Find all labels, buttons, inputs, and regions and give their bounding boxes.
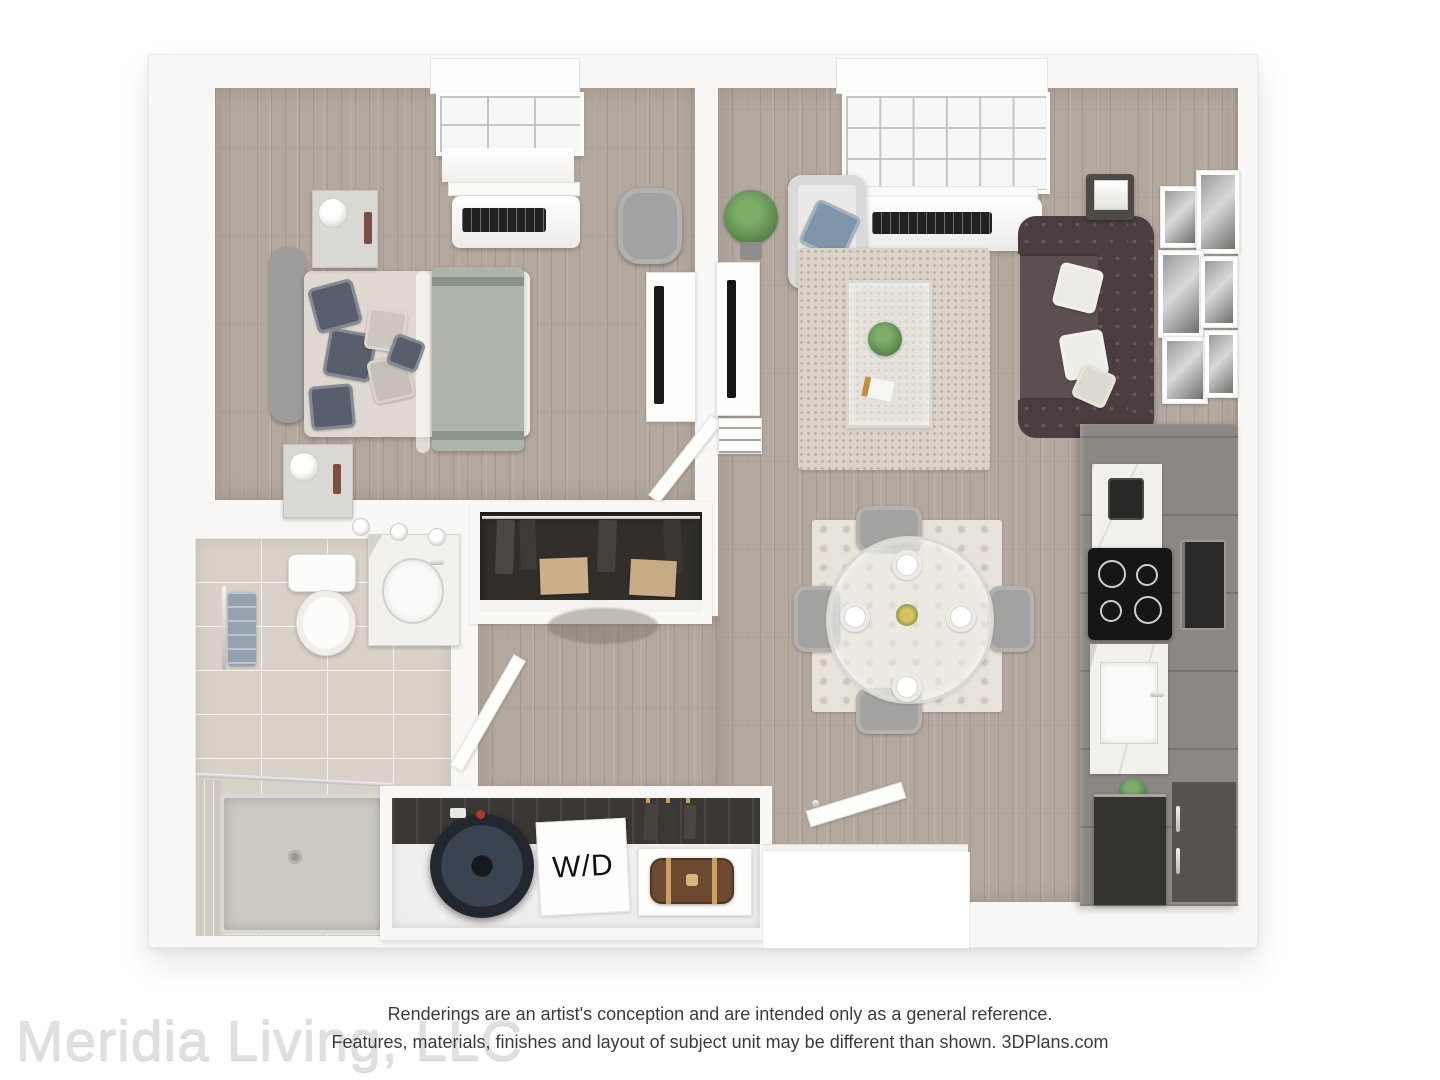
- bedroom-monitor: [654, 286, 664, 404]
- living-window: [842, 92, 1050, 194]
- place-setting-south: [892, 672, 922, 702]
- vanity-sconce-1: [352, 518, 370, 536]
- entry-opening: [762, 852, 970, 948]
- vanity-sconce-2: [390, 523, 408, 541]
- cooktop: [1088, 548, 1172, 640]
- sofa-arm-top: [1018, 216, 1128, 254]
- vanity-sink: [382, 558, 444, 624]
- nightstand-top-lamp: [318, 198, 348, 228]
- washer-dryer: W/D: [536, 818, 631, 917]
- nightstand-top-drawers: [364, 212, 372, 244]
- disclaimer-line-1: Renderings are an artist's conception an…: [0, 1000, 1440, 1028]
- living-window-frame: [836, 58, 1048, 94]
- refrigerator-handle-2: [1176, 848, 1180, 874]
- hanger-hooks: [646, 798, 698, 803]
- dining-centerpiece: [896, 604, 918, 626]
- doormat: [548, 608, 658, 644]
- floor-plan: W/D: [0, 0, 1440, 1000]
- duffel-bag-strap-1: [666, 858, 671, 904]
- toilet-bowl: [296, 590, 356, 656]
- burner-3: [1100, 600, 1122, 622]
- burner-1: [1098, 560, 1126, 588]
- water-heater-cap: [450, 808, 466, 818]
- bed: [270, 245, 526, 453]
- closet-box-2: [629, 559, 677, 597]
- bed-blanket: [432, 267, 524, 451]
- place-setting-north: [892, 550, 922, 580]
- bed-blanket-band-bottom: [432, 431, 524, 440]
- media-shelf: [718, 418, 762, 454]
- tv-console: [716, 262, 760, 416]
- towel: [228, 592, 256, 666]
- wall-art-1: [1160, 186, 1200, 248]
- water-heater: [430, 814, 534, 918]
- closet-clothes-1: [495, 520, 515, 575]
- corner-plant-pot: [740, 242, 762, 260]
- nightstand-bottom-drawers: [333, 464, 341, 494]
- living-ac-vent: [872, 212, 992, 234]
- nightstand-bottom-lamp: [289, 452, 319, 482]
- water-heater-valve: [476, 810, 485, 819]
- dishwasher: [1094, 794, 1166, 905]
- closet-clothes-3: [597, 520, 617, 573]
- burner-2: [1136, 564, 1158, 586]
- bedroom-ac-vent: [462, 208, 546, 232]
- shower-tile-wall: [195, 780, 221, 936]
- laundry-closet-interior: W/D: [392, 798, 760, 928]
- vanity-sconce-3: [428, 528, 446, 546]
- page: { "footer": { "disclaimer_line1": "Rende…: [0, 0, 1440, 1080]
- washer-dryer-label: W/D: [551, 848, 614, 885]
- toilet-tank: [288, 554, 356, 592]
- sofa: [1018, 216, 1154, 438]
- burner-4: [1134, 596, 1162, 624]
- coffee-table-plant: [868, 322, 902, 356]
- side-table-lamp: [1094, 180, 1128, 210]
- kitchen-faucet: [1150, 692, 1164, 697]
- bedroom-desk-chair: [618, 188, 682, 264]
- place-setting-west: [840, 602, 870, 632]
- wall-art-3: [1158, 250, 1204, 338]
- bedroom-window-shade: [442, 148, 574, 182]
- duffel-bag-clasp: [686, 874, 698, 886]
- kitchen-sink: [1100, 662, 1158, 744]
- towel-bar: [222, 586, 226, 670]
- refrigerator: [1172, 782, 1236, 904]
- bedroom-window-frame: [430, 58, 580, 94]
- tv: [727, 280, 736, 398]
- kitchen: [1080, 424, 1238, 906]
- microwave: [1180, 540, 1226, 630]
- bed-pillow-dark-3: [308, 383, 356, 431]
- dining-chair-east: [988, 586, 1034, 652]
- coffee-maker: [1108, 478, 1144, 520]
- hanging-clothes-3: [683, 805, 696, 839]
- wall-art-2: [1196, 170, 1240, 254]
- wall-art-5: [1162, 336, 1208, 404]
- bedroom-window: [436, 92, 584, 156]
- refrigerator-handle-1: [1176, 806, 1180, 832]
- disclaimer: Renderings are an artist's conception an…: [0, 1000, 1440, 1056]
- place-setting-east: [946, 602, 976, 632]
- wall-art-6: [1204, 330, 1238, 398]
- bed-blanket-band-top: [432, 277, 524, 286]
- duffel-bag-strap-2: [712, 858, 717, 904]
- shower-drain: [288, 850, 302, 864]
- bedroom-window-sill: [448, 182, 580, 196]
- bed-headboard: [270, 247, 306, 423]
- vanity-faucet: [430, 560, 444, 565]
- closet-rod: [482, 516, 700, 519]
- hanging-clothes-2: [663, 803, 678, 841]
- closet-box-1: [539, 557, 588, 595]
- shower-pan: [220, 794, 384, 934]
- hanging-clothes-1: [643, 804, 659, 841]
- wall-art-4: [1200, 256, 1238, 328]
- disclaimer-line-2: Features, materials, finishes and layout…: [0, 1028, 1440, 1056]
- closet-clothes-2: [519, 520, 537, 571]
- entry-door-handle: [812, 800, 819, 807]
- corner-plant: [724, 190, 778, 244]
